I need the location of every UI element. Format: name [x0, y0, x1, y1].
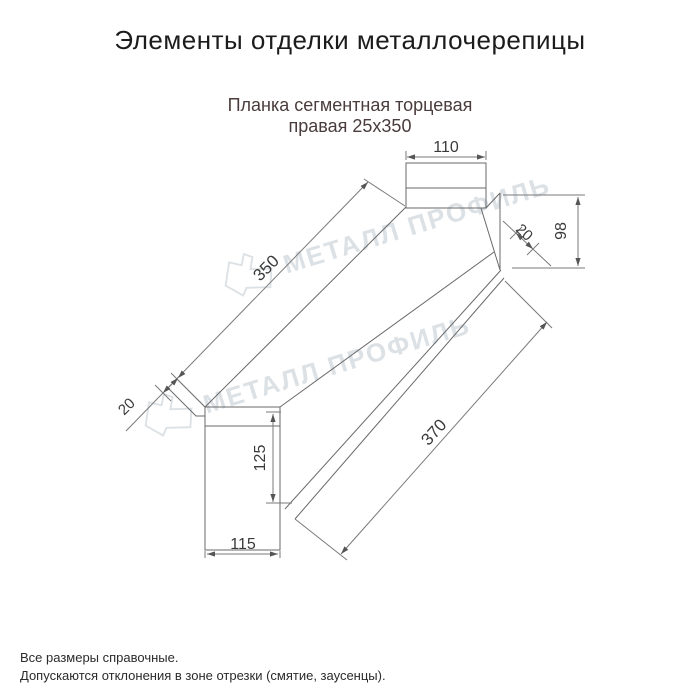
watermark-1: МЕТАЛЛ ПРОФИЛЬ — [214, 159, 557, 310]
product-subtitle-line-1: Планка сегментная торцевая — [0, 95, 700, 116]
product-subtitle: Планка сегментная торцевая правая 25x350 — [0, 95, 700, 137]
dim-end-width: 115 — [230, 536, 256, 553]
dim-end-height: 125 — [252, 445, 269, 472]
dim-bottom-length: 370 — [417, 415, 450, 449]
footer-note-1: Все размеры справочные. — [20, 649, 386, 667]
metalprofil-logo-icon — [214, 243, 283, 310]
watermark-2: МЕТАЛЛ ПРОФИЛЬ — [134, 299, 477, 450]
page: { "header": { "title": "Элементы отделки… — [0, 0, 700, 700]
dim-right-height: 98 — [553, 222, 570, 240]
watermark-text: МЕТАЛЛ ПРОФИЛЬ — [200, 309, 475, 420]
footer-notes: Все размеры справочные. Допускаются откл… — [20, 649, 386, 685]
dim-top-width: 110 — [433, 139, 459, 156]
footer-note-2: Допускаются отклонения в зоне отрезки (с… — [20, 667, 386, 685]
page-title: Элементы отделки металлочерепицы — [0, 24, 700, 56]
dim-right-hem: 20 — [512, 221, 536, 245]
watermark-text: МЕТАЛЛ ПРОФИЛЬ — [280, 169, 555, 280]
metalprofil-logo-icon — [134, 383, 203, 450]
product-subtitle-line-2: правая 25x350 — [0, 116, 700, 137]
